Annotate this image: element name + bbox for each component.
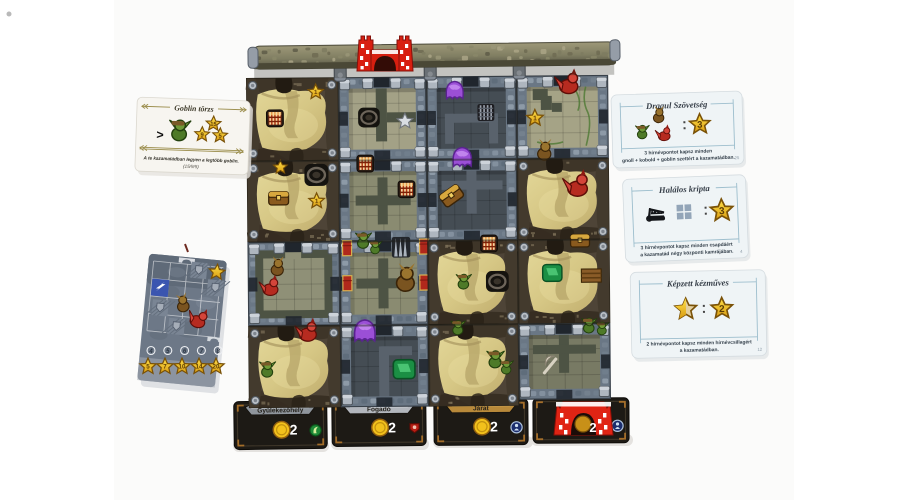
svg-text:2: 2: [490, 418, 498, 434]
svg-text:3: 3: [697, 120, 703, 131]
svg-text:2: 2: [589, 420, 596, 435]
svg-text:a kazamatádban.: a kazamatádban.: [680, 347, 720, 354]
svg-text:Halálos kripta: Halálos kripta: [658, 183, 711, 195]
svg-text:Goblin törzs: Goblin törzs: [174, 103, 214, 113]
svg-text:3: 3: [719, 206, 725, 217]
svg-text:Képzett kézműves: Képzett kézműves: [666, 277, 730, 288]
svg-text:1: 1: [533, 115, 537, 122]
svg-text:Járat: Járat: [473, 405, 490, 412]
svg-text:25: 25: [735, 155, 740, 160]
svg-text:Gyülekezőhely: Gyülekezőhely: [257, 407, 304, 415]
svg-text:Dragul Szövetség: Dragul Szövetség: [645, 99, 708, 111]
svg-text:15: 15: [210, 122, 216, 128]
svg-text:4: 4: [148, 349, 153, 355]
svg-text:2: 2: [388, 419, 396, 435]
svg-text:5: 5: [146, 364, 150, 371]
svg-text:>: >: [156, 128, 164, 142]
svg-text:20: 20: [213, 364, 220, 371]
svg-text:1: 1: [315, 198, 319, 205]
svg-text:10: 10: [179, 364, 186, 371]
svg-text:(15/9/5): (15/9/5): [183, 164, 199, 170]
svg-text:12: 12: [757, 347, 762, 352]
svg-text:7: 7: [163, 364, 167, 371]
svg-text:Fogadó: Fogadó: [367, 406, 391, 413]
svg-text:1: 1: [314, 89, 318, 96]
svg-text:14: 14: [196, 364, 203, 371]
svg-text:2: 2: [719, 304, 725, 315]
svg-text:2: 2: [290, 422, 298, 438]
